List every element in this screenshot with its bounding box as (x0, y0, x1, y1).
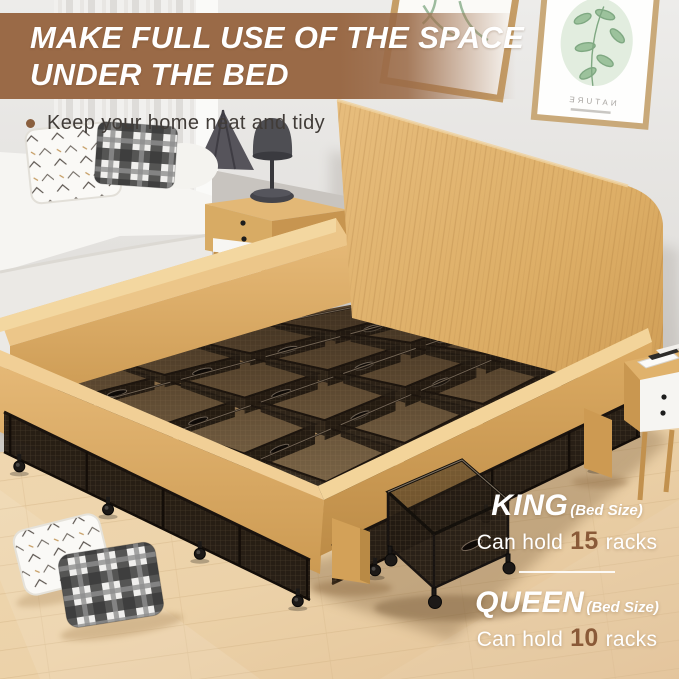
king-label: KING (491, 489, 568, 523)
queen-suffix: (Bed Size) (586, 599, 659, 616)
product-image: NATURE (0, 0, 679, 679)
headline-banner: MAKE FULL USE OF THE SPACE UNDER THE BED (0, 13, 679, 99)
queen-capacity-prefix: Can hold (477, 628, 563, 652)
tagline: Keep your home neat and tidy (26, 112, 325, 135)
king-capacity-prefix: Can hold (477, 531, 563, 555)
queen-capacity-unit: racks (606, 628, 658, 652)
king-capacity-count: 15 (570, 527, 598, 556)
queen-label: QUEEN (475, 586, 584, 620)
king-size-row: KING (Bed Size) (460, 489, 674, 523)
king-suffix: (Bed Size) (570, 502, 643, 519)
queen-capacity-count: 10 (570, 624, 598, 653)
divider-line (519, 571, 615, 573)
bullet-dot (26, 119, 35, 128)
size-info-panel: KING (Bed Size) Can hold 15 racks QUEEN … (460, 489, 674, 653)
queen-capacity: Can hold 10 racks (460, 624, 674, 653)
headline-line2: UNDER THE BED (30, 56, 679, 93)
tagline-text: Keep your home neat and tidy (47, 112, 325, 135)
king-capacity-unit: racks (606, 531, 658, 555)
queen-size-row: QUEEN (Bed Size) (460, 586, 674, 620)
headline-line1: MAKE FULL USE OF THE SPACE (30, 19, 679, 56)
king-capacity: Can hold 15 racks (460, 527, 674, 556)
